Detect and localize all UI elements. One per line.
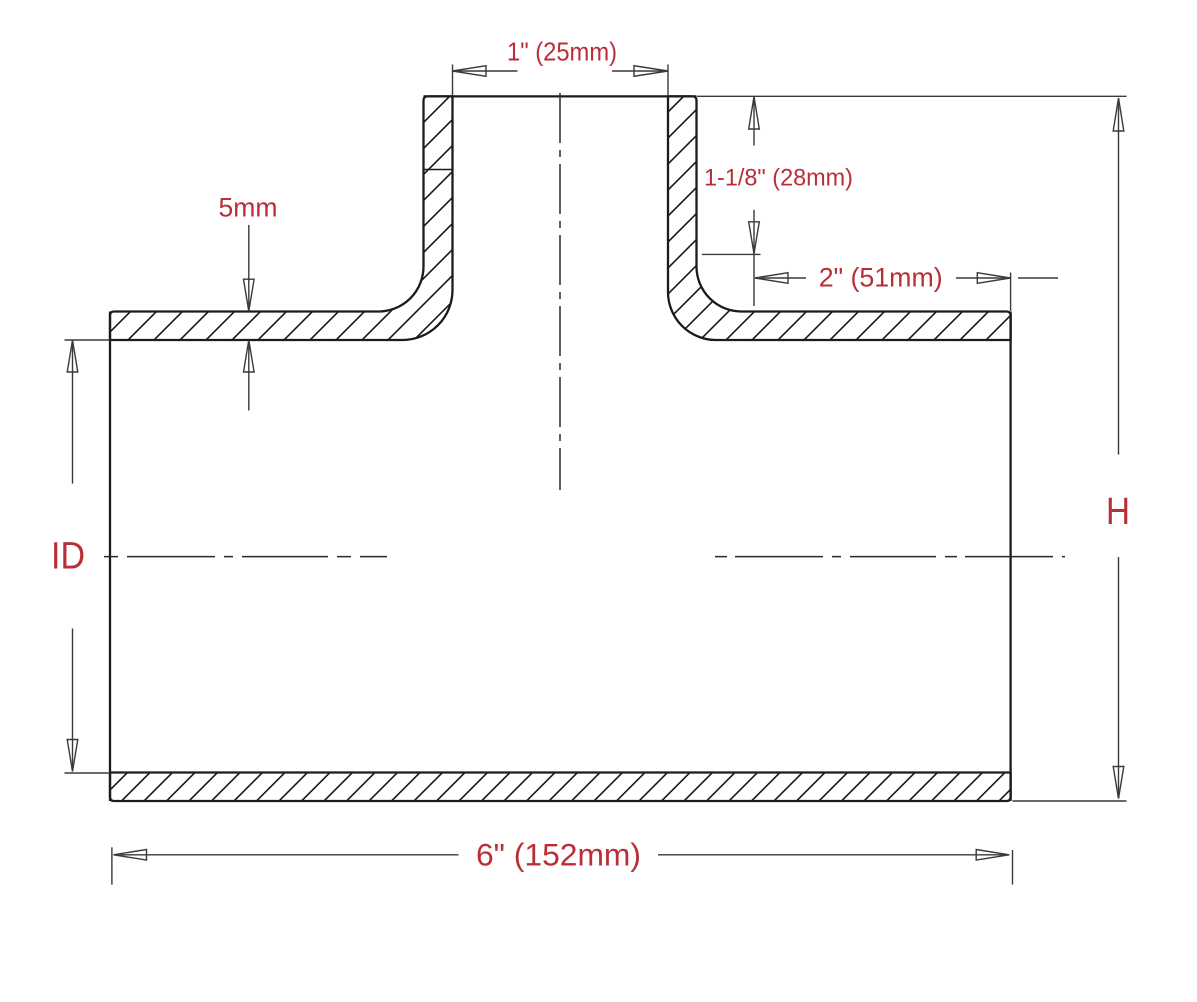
svg-text:ID: ID	[51, 536, 85, 578]
svg-text:1" (25mm): 1" (25mm)	[507, 37, 617, 67]
svg-text:5mm: 5mm	[219, 193, 278, 223]
svg-text:1-1/8" (28mm): 1-1/8" (28mm)	[704, 165, 853, 192]
svg-text:2" (51mm): 2" (51mm)	[819, 263, 943, 293]
svg-text:H: H	[1106, 491, 1130, 533]
svg-text:6" (152mm): 6" (152mm)	[476, 836, 641, 872]
